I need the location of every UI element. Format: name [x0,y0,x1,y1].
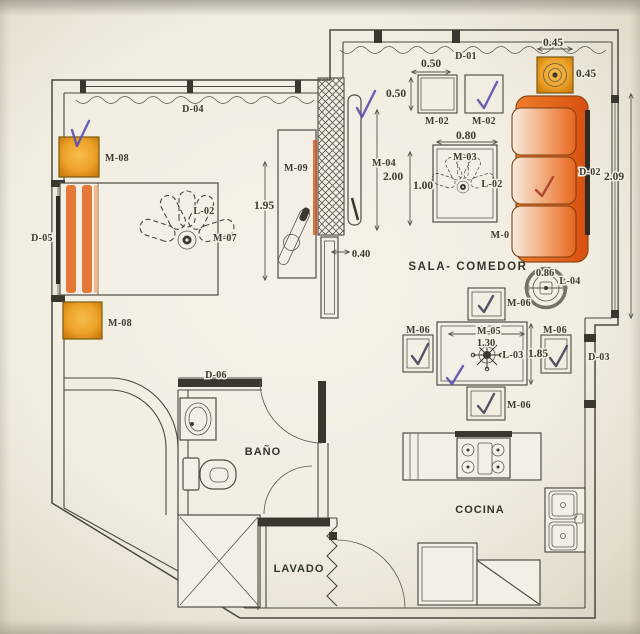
dim-209: 2.09 [604,171,624,183]
dim-200: 2.00 [383,171,403,183]
label-m06-right: M-06 [543,325,567,336]
label-m05: M-05 [477,326,501,337]
label-l03: L-03 [502,350,523,361]
dim-045-side: 0.45 [576,68,596,80]
kitchen-sink-counter [545,488,585,552]
label-d04: D-04 [182,104,204,115]
kitchen-counter-bottom [418,543,477,605]
dim-050-vertical: 0.50 [386,88,406,100]
nightstand-m08-bottom [63,302,102,339]
shower [178,515,260,607]
label-m02-right: M-02 [472,116,496,127]
dim-086: 0.86 [536,268,554,279]
refrigerator [477,560,540,605]
window-d04 [80,80,301,93]
side-table-m02-left-inner [421,78,454,110]
photo-shadow-bottom [0,620,640,634]
label-m01: M-0 [491,230,510,241]
dim-130: 1.30 [477,338,495,349]
label-m07: M-07 [213,233,237,244]
toilet [183,458,236,490]
room-label-lavado: LAVADO [274,563,325,575]
label-d05: D-05 [31,233,53,244]
label-m03: M-03 [453,152,477,163]
label-m09: M-09 [284,163,308,174]
floor-plan-drawing: D-04 D-01 D-02 D-03 D-05 D-06 M-08 M-08 … [0,0,640,634]
photo-shadow-right [630,0,640,634]
stove [455,431,512,478]
dim-080: 0.80 [456,130,476,142]
label-l02-bedroom: L-02 [193,206,214,217]
room-label-sala-comedor: SALA- COMEDOR [408,261,527,273]
label-l02-living: L-02 [481,179,502,190]
label-m08-bottom: M-08 [108,318,132,329]
side-table-m02-left [418,75,457,113]
label-l04: L-04 [559,276,580,287]
label-m06-top: M-06 [507,298,531,309]
bed [56,183,218,295]
room-label-bano: BAÑO [245,445,281,458]
dim-195: 1.95 [254,200,274,212]
label-m04: M-04 [372,158,396,169]
floor-plan-photo: D-04 D-01 D-02 D-03 D-05 D-06 M-08 M-08 … [0,0,640,634]
dim-040: 0.40 [352,249,370,260]
label-d01: D-01 [455,51,477,62]
label-d06: D-06 [205,370,227,381]
label-m06-bottom: M-06 [507,400,531,411]
label-m08-top: M-08 [105,153,129,164]
dim-050-horizontal: 0.50 [421,58,441,70]
label-m06-left: M-06 [406,325,430,336]
wardrobe-m09 [274,130,317,278]
bathroom-sink [180,398,216,440]
photo-shadow-top [0,0,640,16]
cabinet-m04 [348,95,361,225]
photo-shadow-left [0,0,10,634]
label-d03: D-03 [588,352,610,363]
label-d02: D-02 [579,167,601,178]
label-m02-left: M-02 [425,116,449,127]
dim-100: 1.00 [413,180,433,192]
dim-045-top: 0.45 [543,37,563,49]
dim-185: 1.85 [528,348,548,360]
room-label-cocina: COCINA [455,504,504,516]
door-leaf-d06 [318,381,326,443]
curtain-bedroom [76,97,314,104]
column-hatch-pattern [318,78,344,235]
window-d02 [613,103,618,310]
